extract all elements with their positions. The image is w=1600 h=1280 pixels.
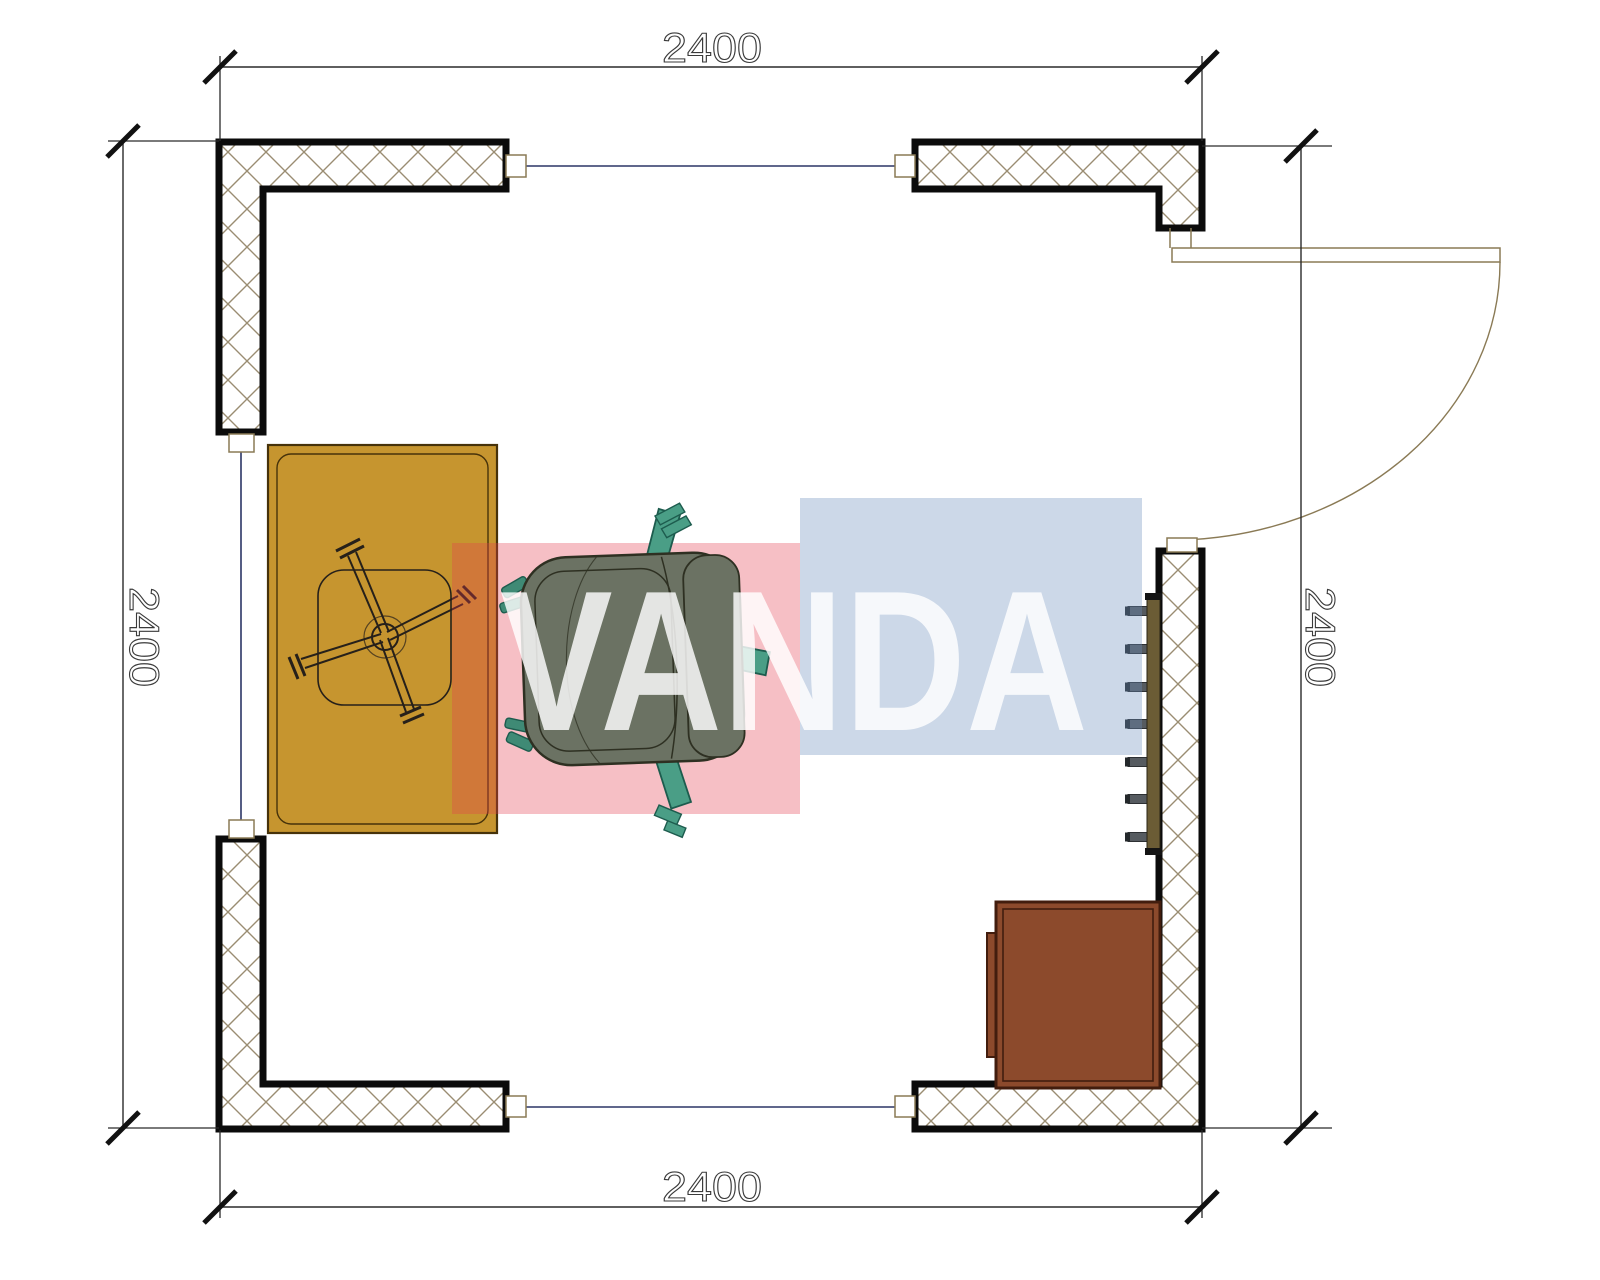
window-jamb xyxy=(895,155,915,177)
coat-rack-hook xyxy=(1128,758,1147,767)
floor-plan-canvas: 2400 2400 2400 2400 xyxy=(0,0,1600,1280)
dimension-right-label: 2400 xyxy=(1297,587,1344,687)
wall-top-right xyxy=(915,142,1202,228)
window-jamb xyxy=(506,1096,526,1117)
window-jamb xyxy=(895,1096,915,1117)
coat-rack-end-cap xyxy=(1145,593,1162,600)
dimension-top-label: 2400 xyxy=(662,24,762,71)
door-group xyxy=(1167,228,1500,552)
coat-rack-hook-tip xyxy=(1125,833,1130,842)
coat-rack-hook-tip xyxy=(1125,758,1130,767)
window-jamb xyxy=(506,155,526,177)
dimension-left-label: 2400 xyxy=(121,587,168,687)
coat-rack-hook xyxy=(1128,795,1147,804)
cabinet xyxy=(987,902,1160,1088)
dimension-bottom-label: 2400 xyxy=(662,1163,762,1210)
window-jamb xyxy=(229,434,254,452)
coat-rack-hook-tip xyxy=(1125,795,1130,804)
watermark-text: VANDA xyxy=(500,550,1088,773)
dimension-top: 2400 xyxy=(204,24,1218,141)
coat-rack-board xyxy=(1147,596,1160,852)
floor-plan: 2400 2400 2400 2400 xyxy=(0,0,1600,1280)
coat-rack-end-cap xyxy=(1145,848,1162,855)
dimension-left: 2400 xyxy=(107,125,219,1144)
door-swing-arc xyxy=(1183,262,1500,540)
wall-top-left xyxy=(219,142,506,432)
dimension-bottom: 2400 xyxy=(204,1130,1218,1223)
window-jamb xyxy=(229,820,254,838)
coat-rack-hook xyxy=(1128,833,1147,842)
cabinet-body xyxy=(996,902,1160,1088)
dimension-right: 2400 xyxy=(1202,130,1344,1144)
door-bottom-jamb xyxy=(1167,538,1197,552)
wall-bottom-left xyxy=(219,839,506,1129)
door-leaf xyxy=(1172,248,1500,262)
